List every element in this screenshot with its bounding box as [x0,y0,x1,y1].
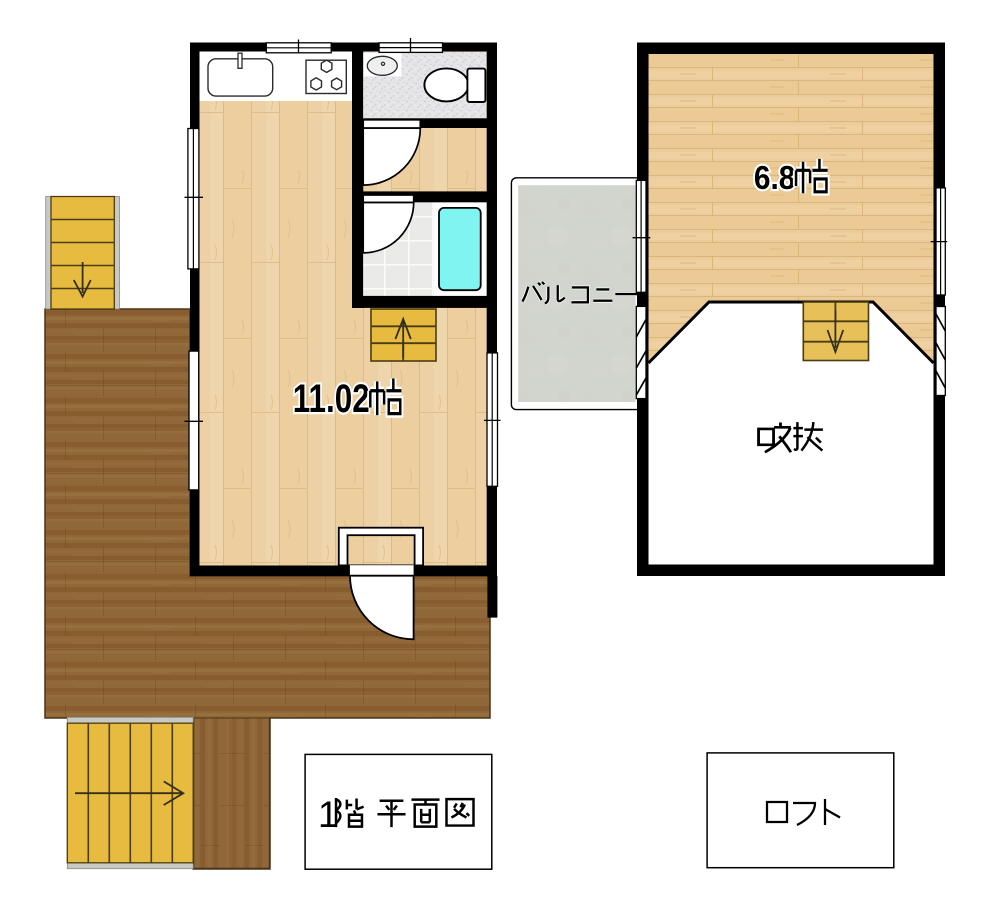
svg-text:11.02: 11.02 [293,377,370,421]
svg-text:6.8: 6.8 [754,159,796,196]
